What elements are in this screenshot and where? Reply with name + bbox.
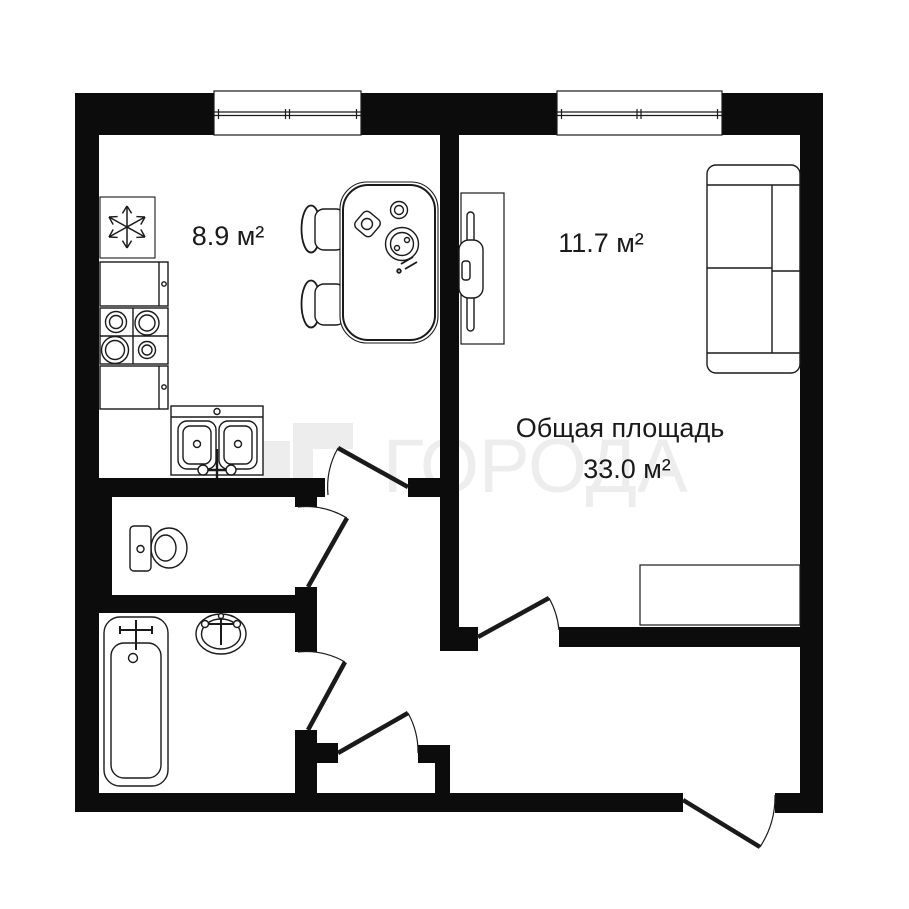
toilet — [130, 526, 187, 571]
wall-wc-right-top — [295, 478, 317, 507]
wall-kitchen-bottom — [99, 478, 325, 497]
wall-wc-left — [99, 478, 112, 613]
door-leaf — [683, 800, 760, 847]
dining-table — [340, 182, 438, 343]
total-area-title: Общая площадь — [516, 413, 725, 443]
wall-right — [800, 93, 823, 813]
door-arc — [549, 598, 559, 630]
door-leaf — [308, 662, 345, 730]
door-arc — [760, 795, 775, 847]
entrance-door — [683, 795, 775, 847]
washbasin — [196, 614, 246, 655]
wc-door — [298, 507, 347, 587]
tv-stand — [459, 193, 504, 344]
bathtub — [104, 617, 168, 786]
wall-wc-bath-divider — [99, 595, 317, 613]
closet-door — [338, 713, 418, 753]
wall-closet-left-stub — [315, 743, 338, 763]
wall-left — [75, 93, 99, 812]
living-room-door — [478, 598, 559, 637]
door-leaf — [338, 713, 408, 753]
wall-bottom — [75, 793, 683, 812]
chair — [302, 206, 346, 253]
wall-bottom-right-corner — [775, 793, 823, 813]
total-area-value: 33.0 м² — [583, 454, 671, 484]
plate-icon — [386, 228, 419, 261]
door-leaf — [308, 518, 347, 587]
kitchen-counter-upper — [100, 262, 168, 306]
floor-plan: ГОРОДА — [0, 0, 909, 909]
kitchen-sink — [171, 406, 263, 478]
wall-living-bottom-stub — [440, 627, 478, 651]
wall-living-bottom — [559, 627, 802, 647]
kitchen-area-label: 8.9 м² — [192, 221, 265, 251]
living-room-area-label: 11.7 м² — [558, 228, 644, 258]
door-leaf — [478, 598, 549, 637]
wall-wc-right-bottom — [295, 730, 317, 793]
door-arc — [298, 507, 347, 518]
chair — [302, 281, 346, 328]
kitchen-window — [214, 91, 361, 135]
door-arc — [298, 652, 345, 662]
stove — [100, 308, 168, 364]
wall-closet-vertical — [435, 745, 450, 793]
bathroom-door — [298, 652, 345, 730]
wall-kitchen-living — [440, 135, 459, 647]
sofa — [707, 165, 800, 373]
wardrobe — [640, 565, 800, 625]
door-arc — [408, 713, 418, 753]
kitchen-counter-lower — [100, 366, 168, 409]
wall-kitchen-door-stub — [408, 478, 440, 497]
cup-icon — [391, 202, 408, 219]
door-arc — [328, 448, 338, 495]
living-room-window — [557, 91, 722, 135]
fridge — [100, 197, 155, 258]
